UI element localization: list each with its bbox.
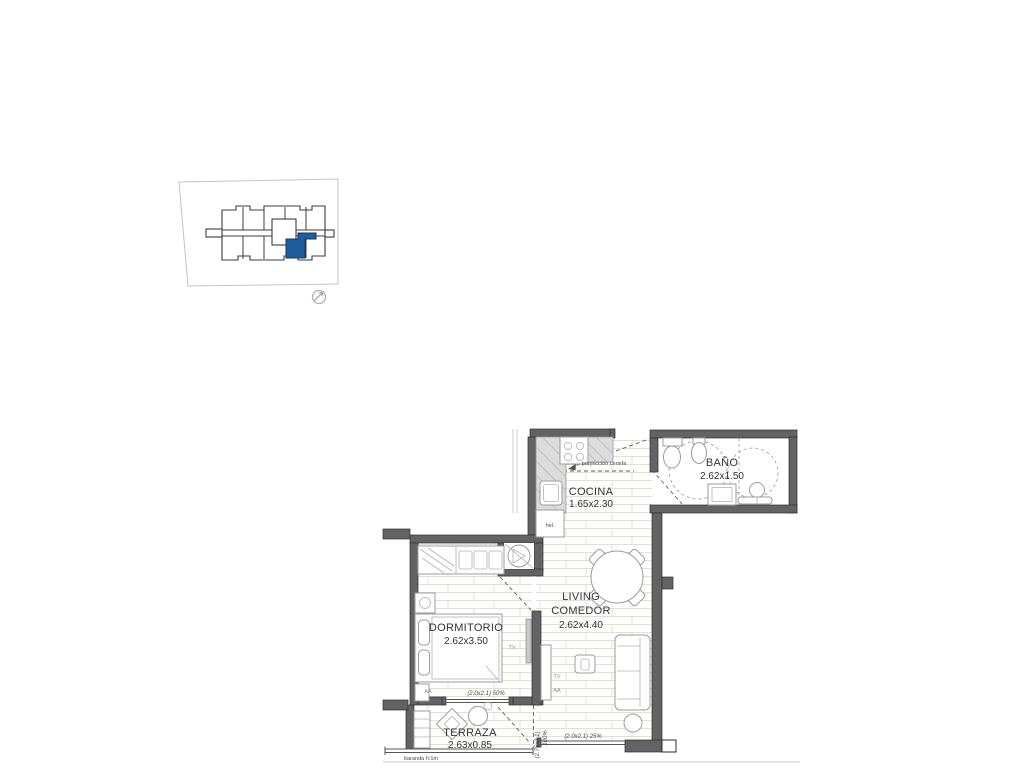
terrace-opening-pct-label: 100% xyxy=(543,730,549,746)
terrace-table-icon xyxy=(469,707,488,726)
wall xyxy=(650,505,797,513)
ac-label-living: AA xyxy=(553,688,561,694)
bedroom-window-label: (2.0x2.1) 50% xyxy=(467,691,505,697)
stove xyxy=(560,437,588,464)
pillow-icon xyxy=(419,620,430,645)
terrace-bench-icon xyxy=(414,711,430,748)
living-window xyxy=(541,741,625,745)
railing-label: baranda h:1m xyxy=(404,756,438,762)
north-arrow-icon xyxy=(313,291,326,304)
fridge-label: hel. xyxy=(546,523,555,529)
wall-stub xyxy=(383,700,408,710)
room-dims-cocina: 1.65x2.30 xyxy=(569,499,613,510)
wall xyxy=(498,569,543,576)
wall xyxy=(789,437,797,513)
floor-plan: COCINA 1.65x2.30 BAÑO 2.62x1.50 LIVING C… xyxy=(383,429,800,762)
tv-console-icon xyxy=(541,645,551,700)
laundry-closet xyxy=(504,543,534,569)
wall xyxy=(652,513,662,743)
tv-label-living: TV xyxy=(553,674,560,680)
key-plan xyxy=(179,179,338,304)
vanity-counter xyxy=(738,497,772,504)
wall xyxy=(528,437,536,535)
room-label-cocina: COCINA xyxy=(569,486,614,498)
toilet-icon xyxy=(664,446,681,468)
room-dims-living: 2.62x4.40 xyxy=(559,620,603,631)
room-label-living-1: LIVING xyxy=(562,591,600,603)
floorplan-canvas: COCINA 1.65x2.30 BAÑO 2.62x1.50 LIVING C… xyxy=(0,0,1024,768)
nightstand-icon xyxy=(415,593,435,613)
pillow-icon xyxy=(419,650,430,675)
kitchen-counter-2 xyxy=(588,437,613,462)
exterior-column xyxy=(662,740,676,752)
wall xyxy=(410,535,543,543)
terrace-opening-size-label: (2.75x2.1) xyxy=(535,731,541,758)
bidet-icon xyxy=(692,443,707,464)
wall xyxy=(406,705,414,749)
window-post xyxy=(509,697,513,705)
wall-tv-icon xyxy=(526,619,531,663)
bedroom-window xyxy=(446,700,509,703)
toilet-tank xyxy=(663,438,682,446)
living-window-label: (2.0x2.1) 25% xyxy=(564,734,602,740)
floorplan-page: COCINA 1.65x2.30 BAÑO 2.62x1.50 LIVING C… xyxy=(0,0,1024,768)
room-label-bano: BAÑO xyxy=(706,456,739,469)
room-label-dormitorio: DORMITORIO xyxy=(429,622,503,634)
pouf-icon xyxy=(624,714,642,732)
room-label-living-2: COMEDOR xyxy=(551,605,611,617)
room-dims-bano: 2.62x1.50 xyxy=(700,471,744,482)
room-dims-terraza: 2.63x0.85 xyxy=(448,740,492,751)
wall-column xyxy=(662,577,673,589)
wall xyxy=(532,611,541,705)
room-label-terraza: TERRAZA xyxy=(443,727,497,739)
wall xyxy=(650,438,658,472)
wall xyxy=(625,740,662,752)
wall xyxy=(650,430,797,438)
wall xyxy=(534,543,543,571)
cenefa-label: proyección cenefa xyxy=(582,461,628,467)
window-post xyxy=(442,697,446,705)
wall-stub xyxy=(383,529,410,539)
shaft-edge xyxy=(513,429,517,513)
room-dims-dormitorio: 2.62x3.50 xyxy=(444,636,488,647)
ac-label-bedroom: AA xyxy=(424,689,432,695)
wall xyxy=(530,429,614,437)
tv-label-bedroom: TV xyxy=(508,645,515,651)
sink-icon xyxy=(750,483,765,498)
